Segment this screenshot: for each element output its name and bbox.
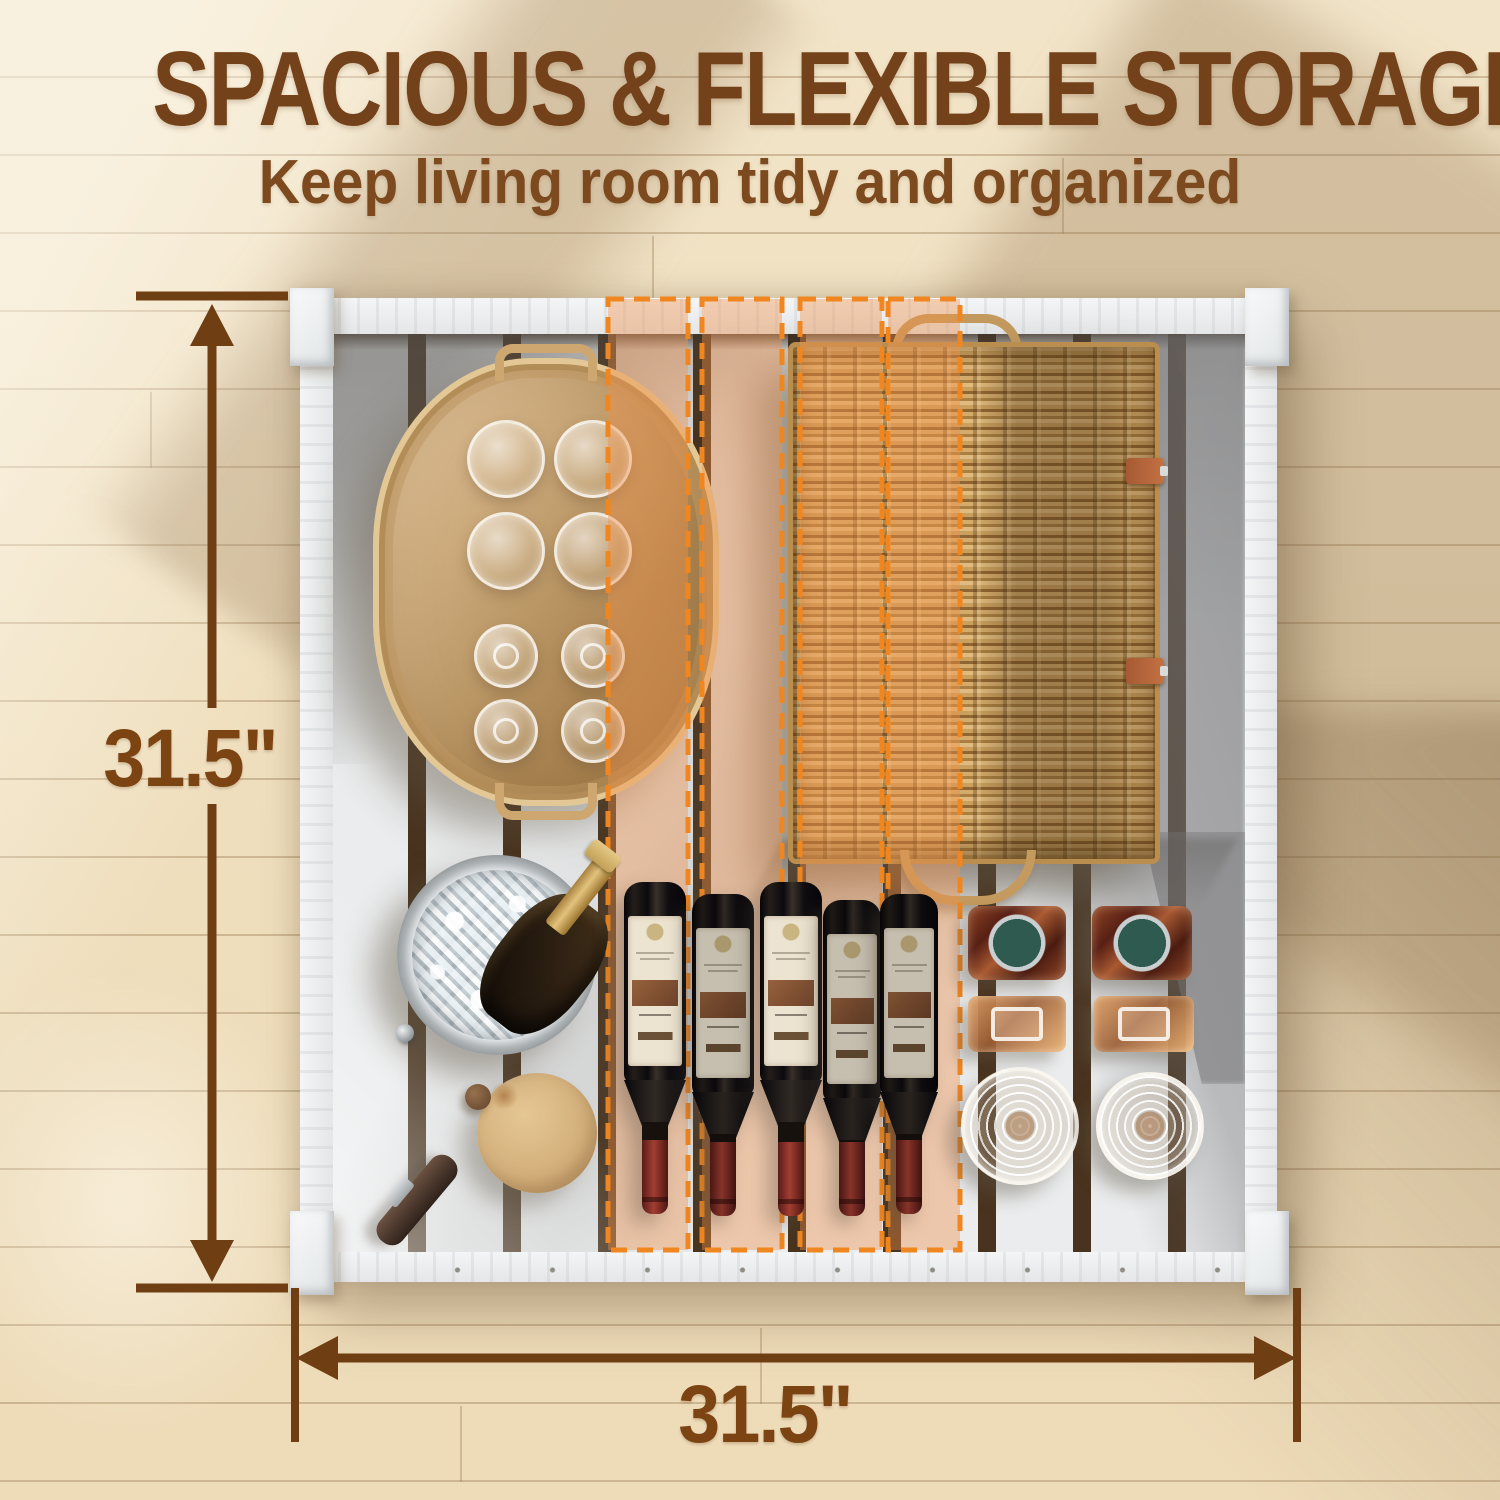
crystal-glass — [961, 1067, 1079, 1185]
bottle-shoulder — [823, 1098, 881, 1144]
round-wooden-board — [477, 1073, 597, 1193]
floor-plank-seam — [150, 392, 152, 468]
crystal-glass — [1096, 1072, 1204, 1180]
corner-post-top-right — [1245, 288, 1289, 366]
bottle-foil — [710, 1142, 736, 1216]
stem-glass — [474, 699, 538, 763]
tray-handle-top — [495, 344, 597, 381]
floor-plank-seam — [208, 1094, 210, 1170]
whiskey-glass — [1094, 996, 1194, 1052]
bottle-shoulder — [760, 1080, 822, 1126]
wine-glass — [554, 420, 632, 498]
basket-leather-strap — [1126, 458, 1164, 484]
basket-shading — [793, 347, 1155, 859]
wine-bottle — [880, 894, 938, 1214]
width-label: 31.5" — [581, 1368, 949, 1462]
corner-post-bottom-left — [290, 1211, 334, 1295]
table-rail-top — [300, 298, 1277, 334]
bottle-foil — [839, 1142, 865, 1216]
stem-glass — [561, 699, 625, 763]
gold-serving-tray — [373, 358, 719, 806]
header-block: SPACIOUS & FLEXIBLE STORAGE Keep living … — [0, 34, 1500, 218]
bucket-knob — [396, 1024, 414, 1042]
basket-leather-strap — [1126, 658, 1164, 684]
decanter-stopper — [1092, 906, 1192, 980]
table-rail-left — [300, 298, 333, 1282]
stem-glass — [561, 624, 625, 688]
bottle-shoulder — [624, 1080, 686, 1126]
storage-table-top-view — [300, 298, 1277, 1282]
bottle-foil — [642, 1140, 668, 1214]
decanter-stopper — [968, 906, 1066, 980]
wine-bottle — [760, 882, 822, 1216]
wine-bottle — [823, 900, 881, 1216]
bottle-shoulder — [692, 1092, 754, 1138]
wicker-storage-basket — [788, 342, 1160, 864]
corner-post-top-left — [290, 288, 334, 366]
wine-label — [827, 934, 877, 1084]
wine-glass — [467, 420, 545, 498]
tray-handle-bottom — [495, 783, 597, 820]
wine-bottle — [692, 894, 754, 1216]
stem-glass — [474, 624, 538, 688]
wine-glass — [467, 512, 545, 590]
table-rail-bottom — [300, 1252, 1277, 1282]
page-title: SPACIOUS & FLEXIBLE STORAGE — [152, 34, 1500, 145]
whiskey-glass — [968, 996, 1066, 1052]
wine-label — [628, 916, 682, 1066]
wine-bottle — [624, 882, 686, 1214]
wine-glass — [554, 512, 632, 590]
floor-plank-seam — [460, 1406, 462, 1482]
wine-label — [696, 928, 750, 1078]
board-knob — [465, 1084, 491, 1110]
bottle-shoulder — [880, 1092, 938, 1138]
wine-label — [884, 928, 934, 1078]
page-subtitle: Keep living room tidy and organized — [60, 147, 1440, 218]
product-infographic: SPACIOUS & FLEXIBLE STORAGE Keep living … — [0, 0, 1500, 1500]
corner-post-bottom-right — [1245, 1211, 1289, 1295]
table-rail-right — [1245, 298, 1277, 1282]
tray-surface — [393, 378, 699, 786]
wine-label — [764, 916, 818, 1066]
bottle-foil — [896, 1140, 922, 1214]
height-label: 31.5" — [98, 712, 282, 806]
bottle-foil — [778, 1142, 804, 1216]
